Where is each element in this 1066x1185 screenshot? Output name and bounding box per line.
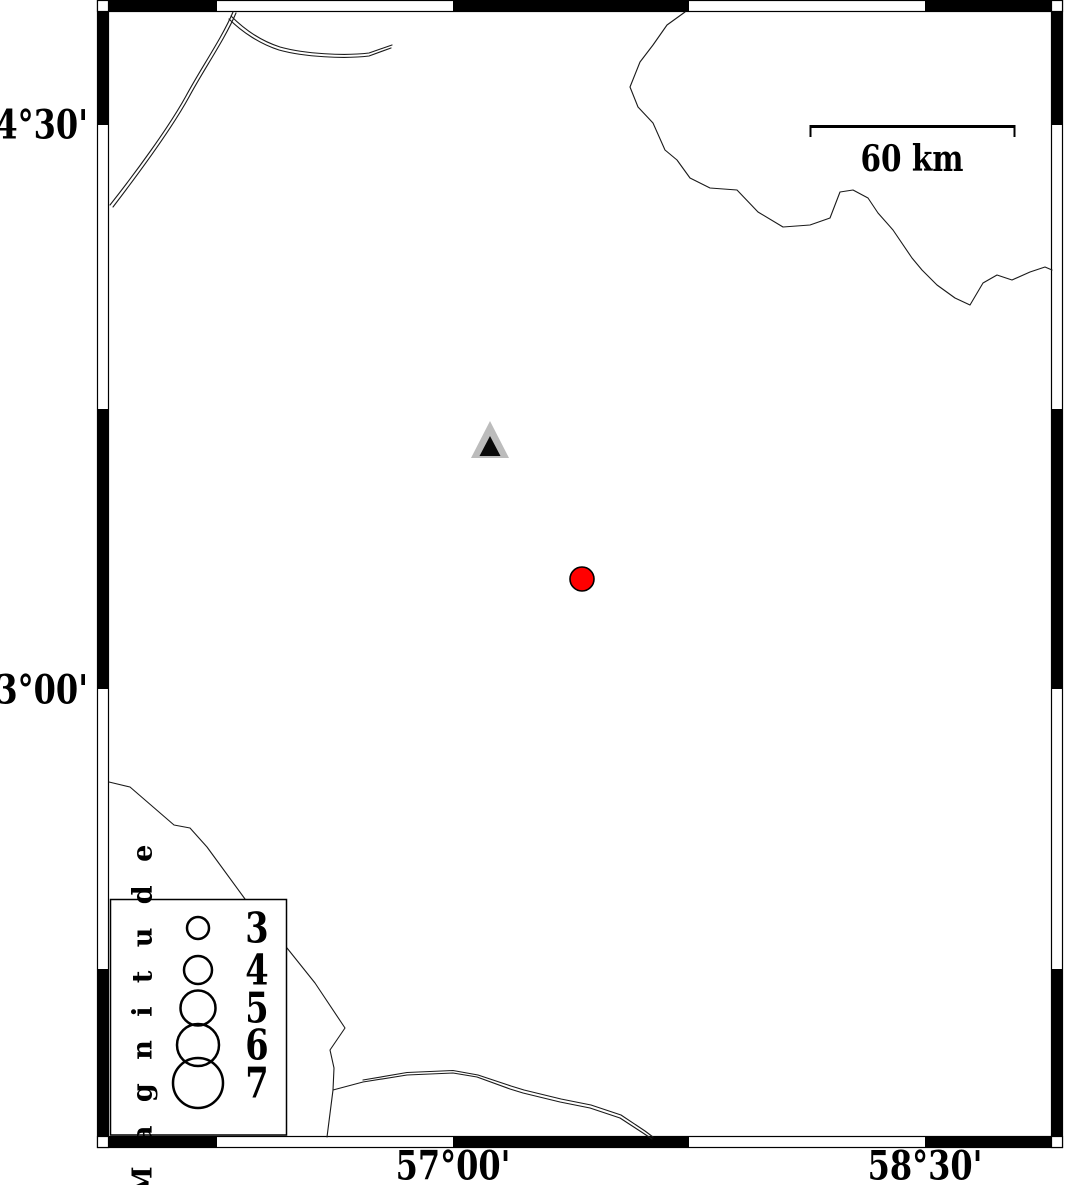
border-line-northeast (630, 12, 1052, 305)
lat-label-33-00: 33°00' (0, 667, 88, 714)
border-line-northwest (110, 12, 233, 205)
border-branch-north-2 (229, 19, 391, 57)
lat-label-34-30: 34°30' (0, 102, 88, 149)
epicenter-dot (570, 567, 594, 591)
lon-label-58-30: 58°30' (853, 1143, 997, 1185)
border-branch-north (231, 16, 392, 54)
border-line-south (333, 1073, 652, 1139)
border-line-south-2 (363, 1071, 653, 1138)
scale-bar (810, 125, 1015, 137)
station-triangle-icon (471, 421, 509, 458)
seismicity-map: 34°30' 33°00' 57°00' 58°30' 60 km M a g … (0, 0, 1066, 1185)
lon-label-57-00: 57°00' (381, 1143, 525, 1185)
scale-bar-label: 60 km (849, 138, 975, 180)
legend-value-7: 7 (242, 1059, 271, 1108)
legend-title: M a g n i t u d e (128, 838, 159, 1185)
